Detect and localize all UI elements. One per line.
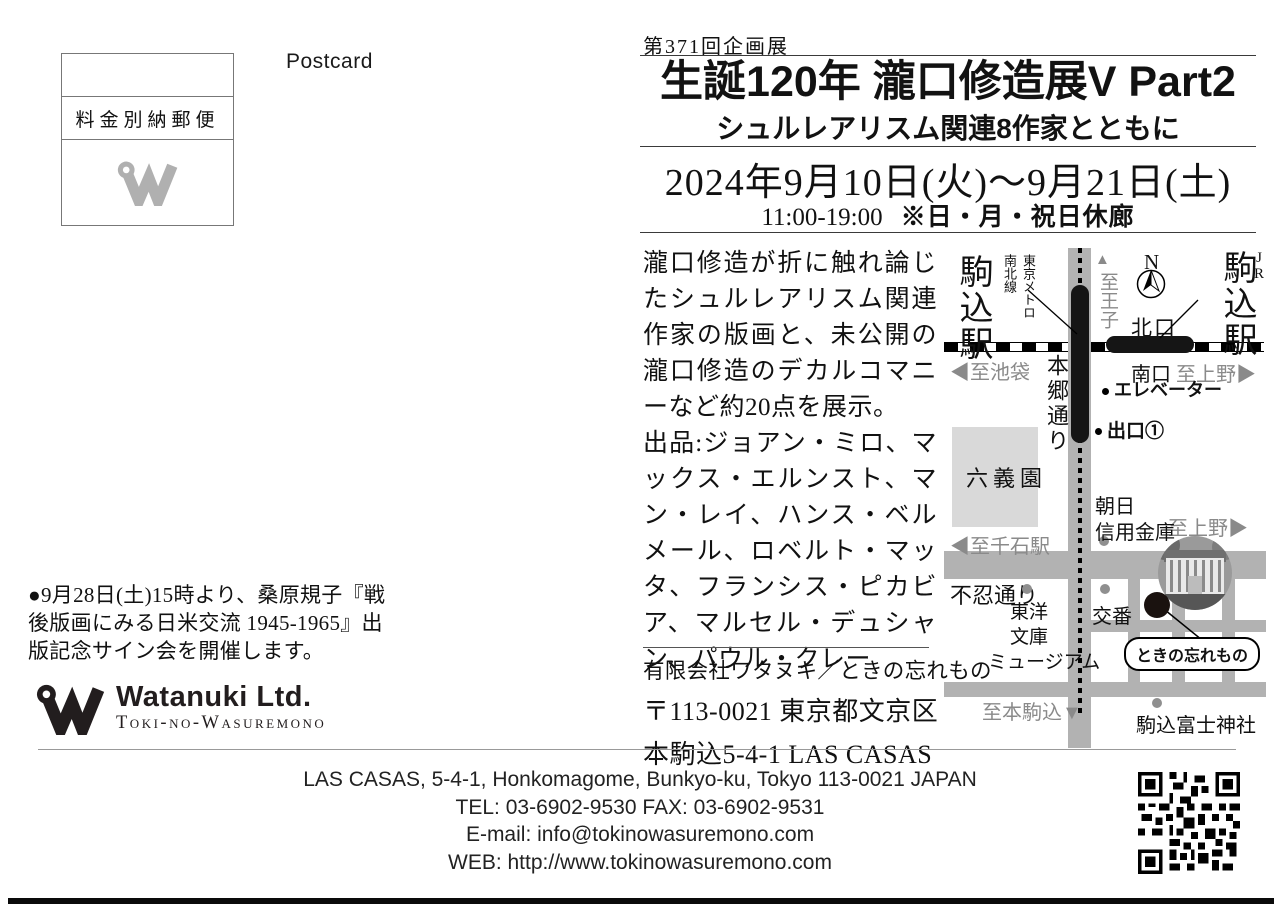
- gallery-location-dot: [1144, 592, 1170, 618]
- open-hours: 11:00-19:00: [761, 204, 882, 231]
- gallery-map-callout: ときの忘れもの: [1124, 637, 1260, 671]
- map-to-oji-label: 至王子: [1094, 272, 1121, 329]
- komagome-metro-station-bar: [1071, 285, 1089, 443]
- map-toyo-bunko-label: 東洋 文庫 ミュージアム: [988, 600, 1070, 675]
- map-to-honkomagome-label: 至本駒込▼: [982, 696, 1082, 725]
- postage-paid-stamp-box: 料金別納郵便: [61, 53, 234, 226]
- exit1-dot-icon: [1095, 428, 1102, 435]
- map-station-left-label: 駒込駅: [948, 254, 997, 362]
- watanuki-w-logo-icon: [36, 682, 106, 735]
- header-rule-2: [640, 146, 1256, 147]
- header-rule-3: [640, 232, 1256, 233]
- exhibition-description: 瀧口修造が折に触れ論じたシュルレアリスム関連作家の版画と、未公開の瀧口修造のデカ…: [643, 246, 937, 426]
- koban-dot-icon: [1100, 584, 1110, 594]
- gallery-building-photo: [1158, 536, 1232, 610]
- map-rikugien-label: 六義園: [966, 461, 1047, 493]
- map-jr-label: JR: [1250, 250, 1267, 282]
- exhibition-hours-row: 11:00-19:00※日・月・祝日休廊: [638, 197, 1258, 233]
- map-elevator-label: エレベーター: [1102, 376, 1222, 402]
- footer-web: WEB: http://www.tokinowasuremono.com: [0, 850, 1280, 877]
- map-metro-line-label: 東京メトロ 南北線: [1000, 254, 1038, 319]
- exhibition-subtitle: シュルレアリスム関連8作家とともに: [638, 107, 1258, 147]
- postcard-label: Postcard: [286, 50, 373, 74]
- qr-code: [1138, 772, 1240, 874]
- postcard: 料金別納郵便 Postcard ●9月28日(土)15時より、桑原規子『戦後版画…: [0, 0, 1280, 907]
- fuji-shrine-dot-icon: [1152, 698, 1162, 708]
- map-exit1-label: 出口①: [1095, 416, 1164, 443]
- logo-gallery-name: Toki-no-Wasuremono: [116, 712, 326, 734]
- map-to-ikebukuro-label: ◀至池袋: [950, 356, 1030, 385]
- exhibition-artists: 出品:ジョアン・ミロ、マックス・エルンスト、マン・レイ、ハンス・ベルメール、ロベ…: [643, 426, 937, 678]
- gallery-logo: Watanuki Ltd. Toki-no-Wasuremono: [36, 682, 326, 735]
- postage-paid-label: 料金別納郵便: [62, 97, 233, 140]
- stamp-box-logo-row: [62, 140, 233, 225]
- signing-event-note: ●9月28日(土)15時より、桑原規子『戦後版画にみる日米交流 1945-196…: [28, 581, 394, 665]
- header-rule-1: [640, 55, 1256, 56]
- shinobazu-dot-icon: [1022, 584, 1032, 594]
- map-koban-label: 交番: [1092, 600, 1132, 629]
- stamp-box-empty-row: [62, 54, 233, 97]
- watanuki-w-logo-gray-icon: [117, 159, 179, 206]
- map-to-sengoku-label: ◀至千石駅: [950, 530, 1050, 559]
- exhibition-description-column: 瀧口修造が折に触れ論じたシュルレアリスム関連作家の版画と、未公開の瀧口修造のデカ…: [643, 246, 937, 678]
- footer-tel-fax: TEL: 03-6902-9530 FAX: 03-6902-9531: [0, 795, 1280, 822]
- footer-rule: [38, 749, 1236, 750]
- map-fuji-shrine-label: 駒込富士神社: [1136, 709, 1256, 738]
- footer-contact-block: LAS CASAS, 5-4-1, Honkomagome, Bunkyo-ku…: [0, 767, 1280, 877]
- closed-days-note: ※日・月・祝日休廊: [901, 204, 1135, 231]
- map-hongo-dori-label: 本郷通り: [1040, 354, 1072, 454]
- logo-company-name: Watanuki Ltd.: [116, 682, 326, 712]
- elevator-dot-icon: [1102, 388, 1109, 395]
- map-north-letter: N: [1144, 250, 1159, 275]
- bottom-road: [944, 682, 1266, 697]
- footer-address-en: LAS CASAS, 5-4-1, Honkomagome, Bunkyo-ku…: [0, 767, 1280, 794]
- address-rule: [643, 647, 929, 648]
- exhibition-title: 生誕120年 瀧口修造展V Part2: [638, 58, 1258, 106]
- access-map: 駒込駅 東京メトロ 南北線 ▲ 至王子 N 駒込駅 JR 北口 ◀至池袋 南口 …: [940, 248, 1270, 748]
- postcard-bottom-edge: [8, 898, 1274, 904]
- map-north-arrow-up: ▲: [1095, 252, 1110, 269]
- komagome-jr-station-bar: [1106, 336, 1194, 353]
- footer-email: E-mail: info@tokinowasuremono.com: [0, 822, 1280, 849]
